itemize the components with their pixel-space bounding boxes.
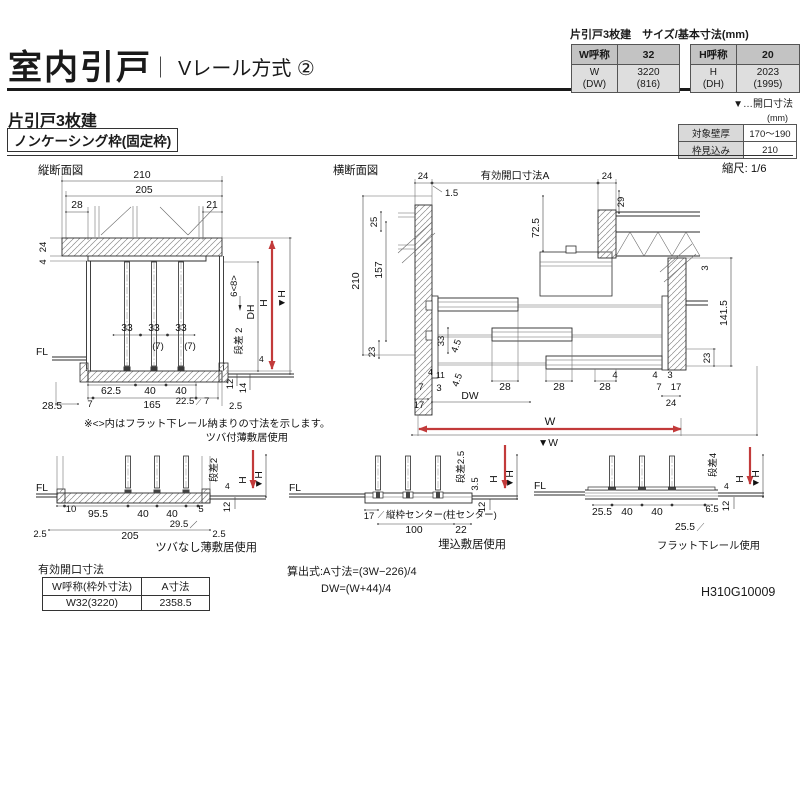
detail-tsuba-sill: FL 段差2 4 H ▼H 12 10 (33, 455, 266, 554)
wall-above-lintel (95, 206, 214, 237)
dim-label: 4 (428, 367, 433, 377)
dim-label: 有効開口寸法A (481, 169, 550, 182)
dim-label: (7) (184, 341, 196, 352)
door-leaves (125, 262, 184, 368)
dim-label: 17 (671, 382, 682, 393)
dim-label: 12 (225, 379, 236, 390)
dim-label: 3 (700, 265, 711, 270)
dim-label: 4 (38, 259, 49, 264)
detail-flat-rail: FL 段差4 4 H ▼H 12 (534, 453, 764, 552)
sill (88, 371, 222, 382)
door-leaf-stubs (376, 456, 441, 492)
right-jamb (662, 296, 668, 370)
dim-label: 7 (656, 382, 661, 393)
dim-label: 段差2 (208, 458, 220, 482)
opening-val1: W32(3220) (43, 596, 142, 611)
lintel (62, 238, 222, 256)
dim-label: 段差 2 (233, 328, 245, 355)
dim-label: H (259, 299, 270, 306)
vsec-note2: ツバ付薄敷居使用 (206, 431, 288, 444)
horizontal-section-drawing: 横断面図 縮尺: 1/6 24 有効開口寸法A 24 1.5 29 25 210 (333, 161, 767, 488)
dim-label: ▼H (751, 470, 762, 488)
dim-label: 1.5 (445, 188, 458, 199)
v-rail (124, 367, 131, 372)
dim-label: H (238, 476, 249, 483)
dim-label: 17 (414, 400, 425, 411)
drawings-canvas: 縦断面図 210 205 28 21 24 4 (0, 0, 800, 800)
dim-label: DW (461, 391, 478, 402)
dim-label: 40 (137, 509, 149, 520)
dim-label: 2.5 (33, 529, 46, 540)
dim-label: 22 (455, 525, 467, 536)
dim-label: 24 (38, 242, 49, 253)
dim-label: 14 (238, 383, 249, 394)
center-note: 縦枠センター(柱センター) (386, 509, 497, 521)
dim-label: 4 (225, 481, 230, 491)
opening-table: W呼称(枠外寸法) A寸法 W32(3220) 2358.5 (42, 577, 210, 611)
dim-label: 205 (121, 531, 138, 542)
dim-label: 7 (418, 382, 423, 393)
dim-label: 3 (667, 370, 672, 381)
dim-label: 4.5 (450, 372, 465, 388)
dim-label: 28.5 (42, 401, 62, 412)
vsec-title: 縦断面図 (38, 163, 83, 177)
dim-label: 62.5 (101, 386, 121, 397)
dim-label: ▼H (505, 470, 516, 488)
dim-label: 2.5 (229, 401, 242, 412)
dim-label: 33 (148, 323, 160, 334)
dim-label: 6<8> (229, 275, 240, 297)
dim-label: 17 (364, 511, 375, 522)
dim-label: (7) (152, 341, 164, 352)
dim-label: 40 (144, 386, 156, 397)
dim-label: 24 (602, 171, 613, 182)
vsec-note: ※<>内はフラット下レール納まりの寸法を示します。 (84, 417, 330, 430)
pocket-frame (540, 252, 612, 296)
dim-label: 40 (621, 507, 633, 518)
hsec-title: 横断面図 (333, 163, 378, 177)
dim-label: 29.5 (170, 519, 189, 530)
dim-label: 10 (66, 504, 77, 515)
fl-label: FL (289, 483, 301, 494)
door-leaf-stubs (126, 456, 189, 489)
dim-label: H (735, 475, 746, 482)
right-wall-top (598, 210, 616, 258)
dim-label: 4 (612, 370, 617, 381)
dim-label: 4 (652, 370, 657, 381)
dim-label: 28 (71, 200, 83, 211)
dim-label: 33 (175, 323, 187, 334)
dim-label: 28 (499, 382, 511, 393)
dim-label: 25.5 (675, 522, 695, 533)
dim-label: 33 (121, 323, 133, 334)
dim-label: 40 (651, 507, 663, 518)
flat-rail-assembly (585, 487, 718, 500)
detail-embedded-sill: FL 段差2.5 3.5 H ▼H 12 17 縦枠センター( (289, 451, 518, 551)
fl-label: FL (36, 347, 48, 358)
dim-label: 28 (599, 382, 611, 393)
detail-caption: フラット下レール使用 (657, 539, 760, 552)
opening-val2: 2358.5 (142, 596, 210, 611)
detail-caption: 埋込敷居使用 (438, 537, 506, 551)
dim-label: 25.5 (592, 507, 612, 518)
dim-label: 6.5 (705, 504, 718, 515)
sill (57, 493, 210, 503)
detail-caption: ツバなし薄敷居使用 (155, 540, 257, 554)
spec-sheet-page: 室内引戸 ｜ Vレール方式 ② 片引戸3枚建 サイズ/基本寸法(mm) W呼称 … (0, 0, 800, 800)
dim-label: 4 (724, 481, 729, 491)
dim-label: 7 (87, 399, 92, 410)
v-rail (151, 367, 158, 372)
dim-label: 段差4 (707, 453, 719, 477)
dim-label: 7 (204, 396, 209, 407)
dim-label: 24 (418, 171, 429, 182)
dim-label: 72.5 (531, 218, 542, 238)
dim-label: 95.5 (88, 509, 108, 520)
dim-label: 3 (436, 383, 441, 394)
dim-label: H (489, 475, 500, 482)
dim-label: 210 (351, 272, 362, 289)
dim-label: DH (246, 305, 257, 320)
formula-block: 算出式:A寸法=(3W−226)/4 DW=(W+44)/4 (287, 564, 417, 597)
dim-label: 165 (143, 400, 160, 411)
dim-label: 12 (222, 502, 233, 513)
dim-label: 24 (666, 398, 677, 409)
dim-label: 22.5 (176, 396, 195, 407)
formula-line2: DW=(W+44)/4 (321, 581, 417, 598)
fl-label: FL (36, 483, 48, 494)
dim-label: 4.5 (449, 338, 464, 354)
fl-label: FL (534, 481, 546, 492)
dim-label: 2.5 (212, 529, 225, 540)
dim-label: 段差2.5 (455, 451, 467, 483)
dim-label: 5 (198, 504, 203, 515)
dim-label: 11 (436, 370, 445, 380)
vertical-section-drawing: 縦断面図 210 205 28 21 24 4 (36, 163, 330, 488)
opening-col1: W呼称(枠外寸法) (43, 578, 142, 596)
opening-col2: A寸法 (142, 578, 210, 596)
dim-label: 12 (721, 501, 732, 512)
dim-label: ▼H (277, 290, 288, 308)
dim-label: ▼W (538, 438, 558, 449)
scale-label: 縮尺: 1/6 (722, 161, 767, 175)
formula-line1: 算出式:A寸法=(3W−226)/4 (287, 564, 417, 581)
right-wall (668, 258, 686, 370)
dim-label: 28 (553, 382, 565, 393)
dim-label: 157 (374, 261, 385, 278)
dim-label: W (545, 416, 556, 428)
dim-label: 23 (367, 347, 378, 358)
dim-label: 4 (259, 354, 264, 364)
dim-label: 210 (133, 170, 150, 181)
dim-label: 33 (436, 336, 447, 347)
dim-label: 205 (135, 185, 152, 196)
dim-label: 23 (702, 353, 713, 364)
v-rail (178, 367, 185, 372)
dim-label: ▼H (254, 471, 265, 489)
dim-label: 25 (369, 217, 380, 228)
dim-label: 29 (616, 197, 627, 208)
opening-table-caption: 有効開口寸法 (38, 561, 104, 577)
dim-label: 21 (206, 200, 218, 211)
door-leaves-plan (438, 298, 662, 369)
door-leaf-stubs (610, 456, 675, 487)
document-number: H310G10009 (701, 585, 775, 599)
dim-label: 100 (405, 525, 422, 536)
dim-label: 3.5 (470, 477, 481, 490)
dim-label: 141.5 (719, 300, 730, 326)
